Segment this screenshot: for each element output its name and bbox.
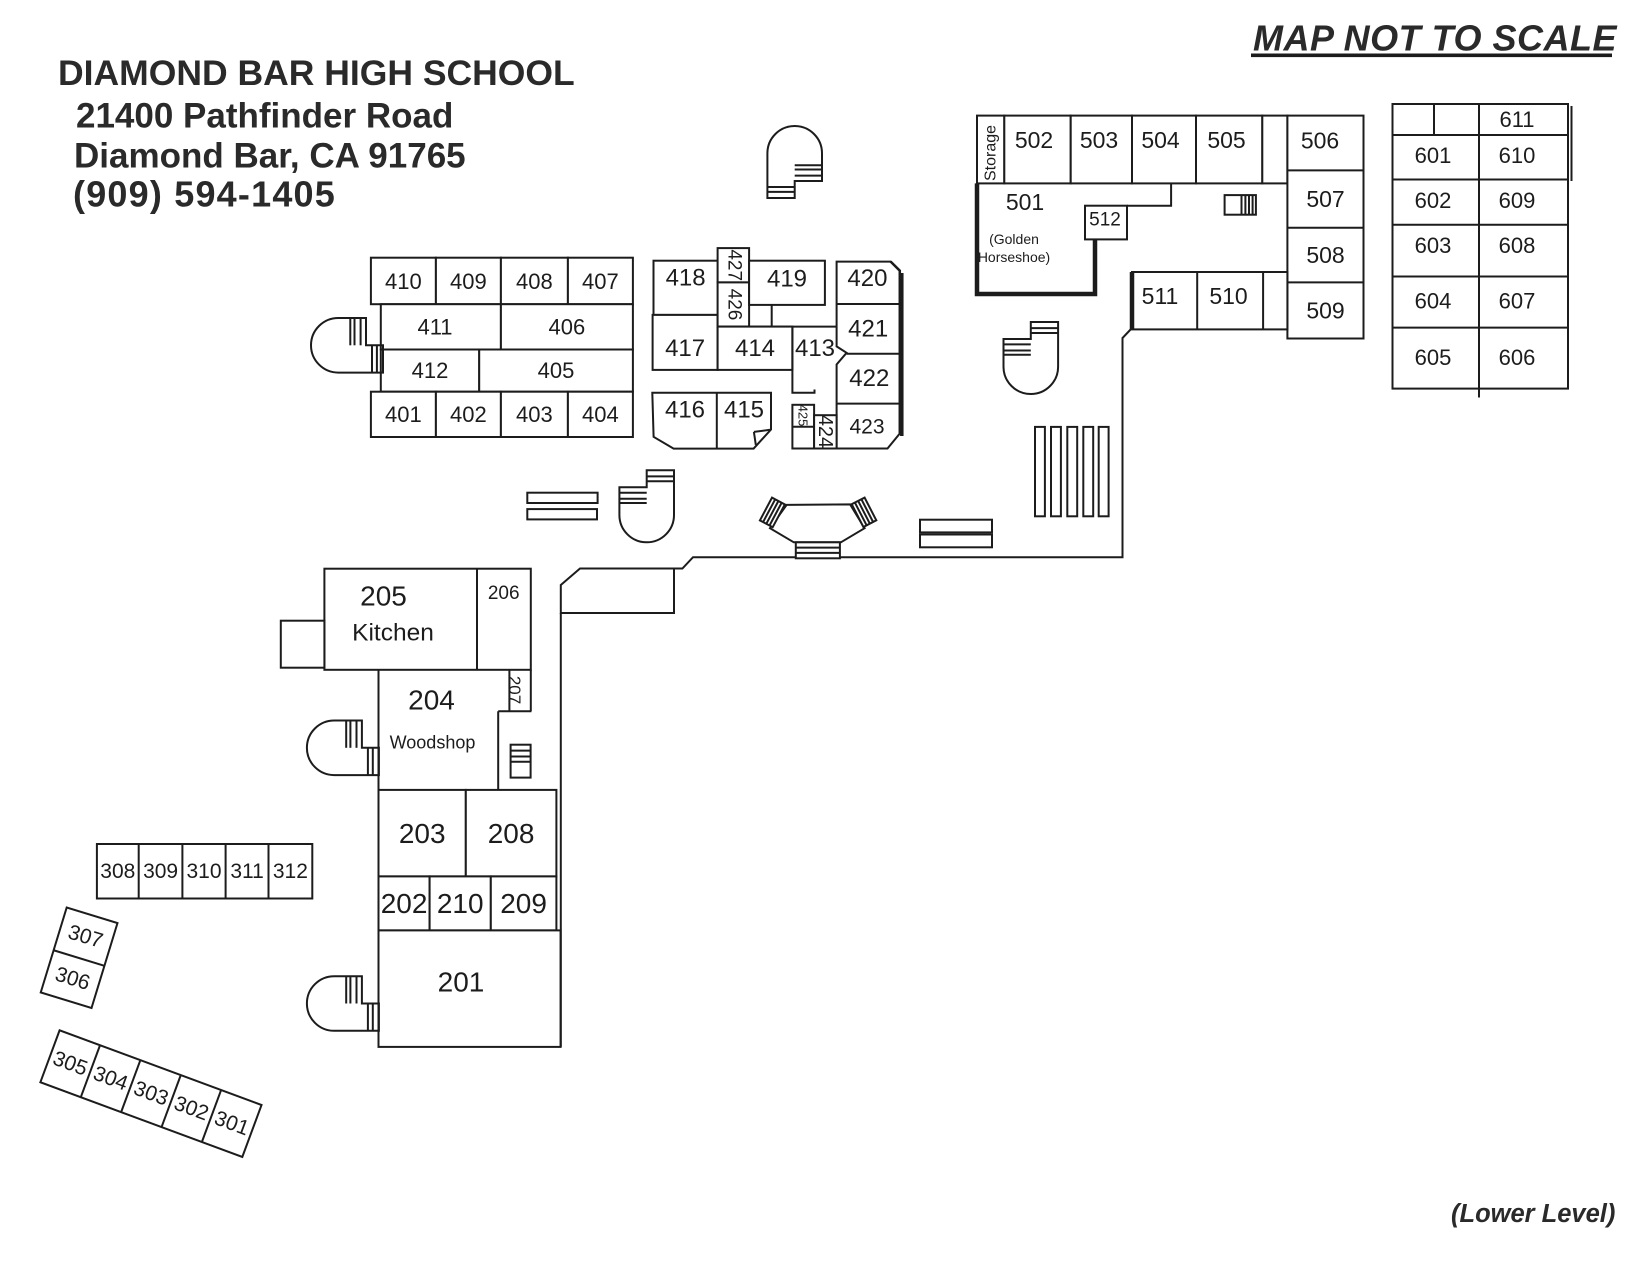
svg-text:416: 416 — [665, 397, 705, 424]
svg-text:MAP NOT TO SCALE: MAP NOT TO SCALE — [1253, 18, 1617, 59]
svg-text:604: 604 — [1415, 288, 1452, 313]
svg-text:21400 Pathfinder Road: 21400 Pathfinder Road — [76, 97, 453, 136]
svg-text:425: 425 — [796, 405, 811, 427]
svg-text:412: 412 — [412, 358, 449, 383]
svg-text:210: 210 — [437, 888, 484, 919]
svg-text:608: 608 — [1499, 233, 1536, 258]
svg-text:512: 512 — [1089, 210, 1121, 231]
svg-text:404: 404 — [582, 402, 619, 427]
svg-text:609: 609 — [1499, 188, 1536, 213]
svg-text:507: 507 — [1306, 186, 1344, 212]
svg-text:Diamond Bar, CA 91765: Diamond Bar, CA 91765 — [74, 137, 466, 176]
svg-text:407: 407 — [582, 269, 619, 294]
svg-text:205: 205 — [360, 581, 407, 612]
svg-text:(909) 594-1405: (909) 594-1405 — [73, 174, 336, 215]
svg-text:424: 424 — [814, 415, 836, 448]
svg-text:406: 406 — [549, 315, 586, 340]
svg-text:603: 603 — [1415, 233, 1452, 258]
svg-text:414: 414 — [735, 335, 775, 362]
svg-text:427: 427 — [723, 249, 744, 281]
svg-text:DIAMOND BAR HIGH SCHOOL: DIAMOND BAR HIGH SCHOOL — [58, 53, 575, 93]
svg-text:602: 602 — [1415, 188, 1452, 213]
svg-text:203: 203 — [399, 818, 446, 849]
svg-text:415: 415 — [724, 397, 764, 424]
svg-text:308: 308 — [100, 860, 135, 883]
svg-text:503: 503 — [1080, 127, 1118, 153]
svg-text:426: 426 — [723, 289, 744, 321]
svg-text:402: 402 — [450, 402, 487, 427]
svg-text:401: 401 — [385, 402, 422, 427]
svg-text:422: 422 — [849, 365, 889, 392]
svg-text:403: 403 — [516, 402, 553, 427]
svg-text:Kitchen: Kitchen — [352, 620, 434, 647]
svg-text:309: 309 — [143, 860, 178, 883]
svg-text:506: 506 — [1301, 128, 1339, 154]
svg-text:504: 504 — [1141, 127, 1180, 153]
svg-text:Woodshop: Woodshop — [390, 733, 476, 753]
svg-text:607: 607 — [1499, 288, 1536, 313]
svg-text:601: 601 — [1415, 143, 1452, 168]
svg-text:508: 508 — [1306, 242, 1344, 268]
svg-text:409: 409 — [450, 269, 487, 294]
svg-text:419: 419 — [767, 266, 807, 293]
svg-text:410: 410 — [385, 269, 422, 294]
svg-text:207: 207 — [505, 676, 524, 704]
svg-text:413: 413 — [795, 335, 835, 362]
svg-text:(Lower Level): (Lower Level) — [1451, 1200, 1615, 1228]
svg-text:509: 509 — [1306, 298, 1344, 324]
svg-text:418: 418 — [666, 265, 706, 292]
svg-text:420: 420 — [847, 265, 887, 292]
svg-text:Storage: Storage — [982, 125, 999, 181]
svg-text:310: 310 — [186, 860, 221, 883]
svg-text:606: 606 — [1499, 345, 1536, 370]
svg-text:Horseshoe): Horseshoe) — [978, 249, 1050, 265]
svg-text:208: 208 — [488, 818, 535, 849]
svg-text:405: 405 — [538, 358, 575, 383]
svg-text:510: 510 — [1209, 283, 1247, 309]
svg-text:202: 202 — [381, 888, 428, 919]
svg-text:(Golden: (Golden — [989, 231, 1039, 247]
svg-text:501: 501 — [1006, 189, 1044, 215]
svg-text:408: 408 — [516, 269, 553, 294]
svg-text:411: 411 — [417, 315, 452, 340]
svg-text:311: 311 — [230, 860, 263, 883]
svg-text:421: 421 — [848, 316, 888, 343]
svg-text:511: 511 — [1142, 283, 1179, 309]
svg-text:312: 312 — [273, 860, 308, 883]
svg-text:611: 611 — [1499, 107, 1534, 132]
svg-text:423: 423 — [849, 416, 884, 439]
svg-text:505: 505 — [1207, 127, 1245, 153]
svg-text:502: 502 — [1015, 127, 1053, 153]
svg-text:209: 209 — [500, 888, 547, 919]
svg-text:610: 610 — [1499, 143, 1536, 168]
svg-text:417: 417 — [665, 335, 705, 362]
svg-text:605: 605 — [1415, 345, 1452, 370]
svg-text:204: 204 — [408, 685, 455, 716]
svg-text:201: 201 — [438, 967, 485, 998]
svg-text:206: 206 — [488, 583, 520, 604]
